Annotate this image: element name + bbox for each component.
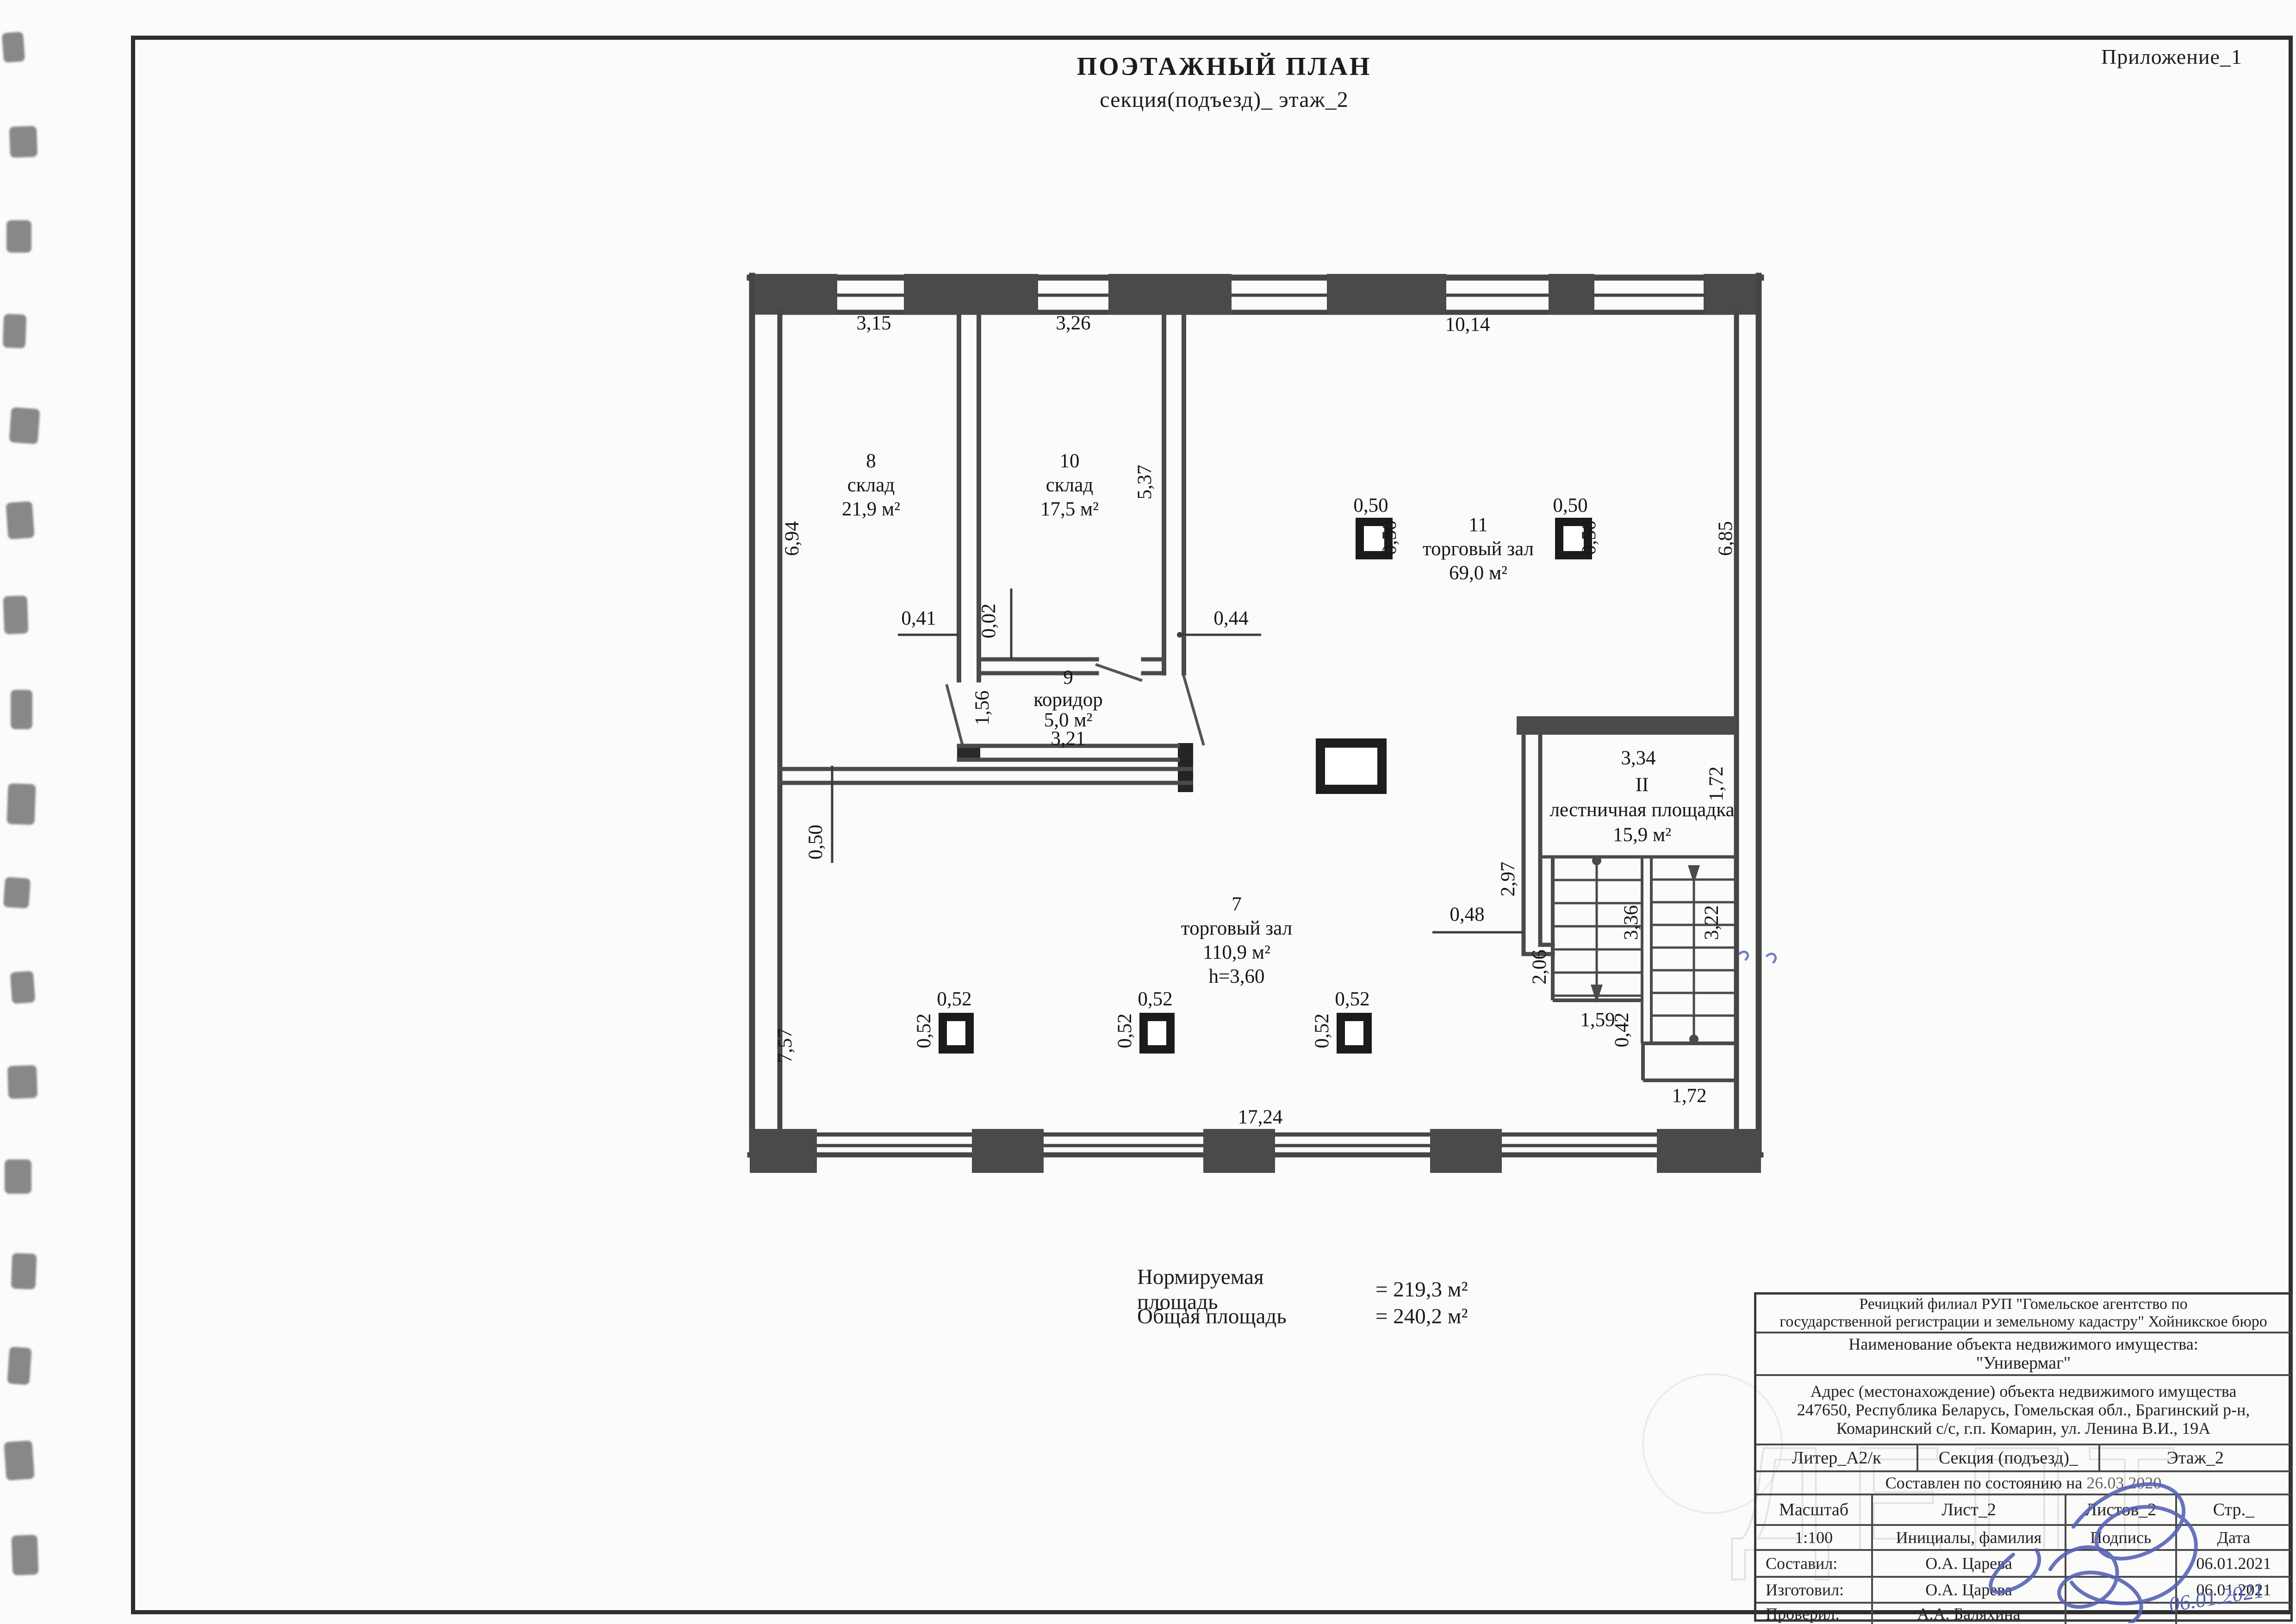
role-label: Составил: [1756,1551,1871,1576]
total-area-value: = 240,2 м² [1375,1304,1468,1329]
area-summary: Нормируемая площадь = 219,3 м² Общая пло… [1137,1276,1646,1330]
agency-line2: государственной регистрации и земельному… [1780,1313,2267,1331]
binding-mark [11,690,32,729]
binding-mark [5,1159,31,1194]
object-caption: Наименование объекта недвижимого имущест… [1848,1335,2198,1353]
scale-value-cell: 1:100 [1756,1526,1871,1549]
address-row: Адрес (местонахождение) объекта недвижим… [1756,1374,2290,1444]
address-caption: Адрес (местонахождение) объекта недвижим… [1811,1382,2237,1401]
total-area-label: Общая площадь [1137,1304,1327,1329]
agency-line1: Речицкий филиал РУП "Гомельское агентств… [1859,1295,2188,1313]
binding-mark [7,1346,31,1385]
person-name: О.А. Царева [1871,1578,2065,1602]
role-label: Проверил: [1756,1604,1871,1624]
liter-row: Литер_А2/к Секция (подъезд)_ Этаж_2 [1756,1444,2290,1470]
signature-header-cell: Подпись [2065,1526,2175,1549]
binding-mark [6,783,36,825]
signature-cell [2065,1578,2175,1602]
object-name: "Универмаг" [1976,1353,2071,1373]
binding-mark [4,1440,35,1481]
composed-date: 26.03.2020 [2086,1474,2161,1492]
sheet-header-row: Масштаб Лист_2 Листов_2 Стр._ [1756,1494,2290,1524]
composed-row: Составлен по состоянию на 26.03.2020 [1756,1470,2290,1494]
scanned-floor-plan-page: { "page": { "appendix": "Приложение_1", … [0,0,2296,1623]
binding-mark [9,407,40,444]
normalized-area-row: Нормируемая площадь = 219,3 м² [1137,1276,1646,1303]
page-subtitle: секция(подъезд)_ этаж_2 [935,87,1513,112]
address-line2: Комаринский с/с, г.п. Комарин, ул. Ленин… [1836,1419,2210,1438]
sheet-cell: Лист_2 [1871,1495,2065,1524]
binding-mark [3,877,31,909]
signature-cell [2065,1551,2175,1576]
person-name: О.А. Царева [1871,1551,2065,1576]
title-block-table: Речицкий филиал РУП "Гомельское агентств… [1754,1292,2293,1622]
address-line1: 247650, Республика Беларусь, Гомельская … [1797,1401,2250,1419]
initials-header-cell: Инициалы, фамилия [1871,1526,2065,1549]
liter-cell: Литер_А2/к [1756,1445,1916,1470]
normalized-area-value: = 219,3 м² [1375,1277,1468,1302]
columns-header-row: 1:100 Инициалы, фамилия Подпись Дата [1756,1524,2290,1549]
binding-mark [12,1535,39,1575]
binding-mark [3,314,27,348]
person-name: А.А. Баляхина [1871,1604,2065,1624]
person-date: 06.01.2021 [2175,1551,2290,1576]
section-cell: Секция (подъезд)_ [1916,1445,2098,1470]
agency-row: Речицкий филиал РУП "Гомельское агентств… [1756,1295,2290,1332]
page-title: ПОЭТАЖНЫЙ ПЛАН [981,52,1467,81]
binding-mark [10,971,36,1004]
binding-mark [11,1253,37,1289]
date-header-cell: Дата [2175,1526,2290,1549]
binding-mark [7,1065,37,1099]
scale-header-cell: Масштаб [1756,1495,1871,1524]
signature-cell [2065,1604,2175,1624]
floor-cell: Этаж_2 [2098,1445,2290,1470]
binding-mark [6,501,34,539]
binding-mark [9,126,37,158]
binding-mark [6,220,31,253]
sheets-cell: Листов_2 [2065,1495,2175,1524]
binding-mark [3,595,29,634]
role-label: Изготовил: [1756,1578,1871,1602]
person-row-sostavil: Составил: О.А. Царева 06.01.2021 [1756,1549,2290,1576]
page-short-cell: Стр._ [2175,1495,2290,1524]
binding-mark [2,31,25,62]
total-area-row: Общая площадь = 240,2 м² [1137,1303,1646,1330]
composed-label: Составлен по состоянию на [1885,1474,2083,1492]
object-row: Наименование объекта недвижимого имущест… [1756,1332,2290,1374]
appendix-label: Приложение_1 [2101,44,2286,69]
